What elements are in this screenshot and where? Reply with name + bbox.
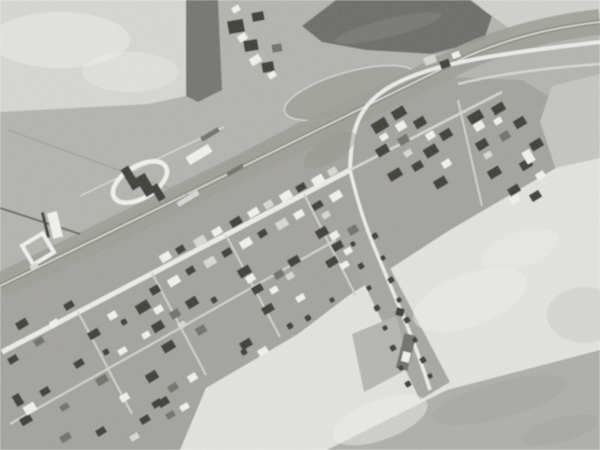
aerial-photo-figure: Black-and-white aerial photograph of a s… (0, 0, 600, 450)
film-grain-overlay (0, 0, 600, 450)
aerial-photo: Black-and-white aerial photograph of a s… (0, 0, 600, 450)
